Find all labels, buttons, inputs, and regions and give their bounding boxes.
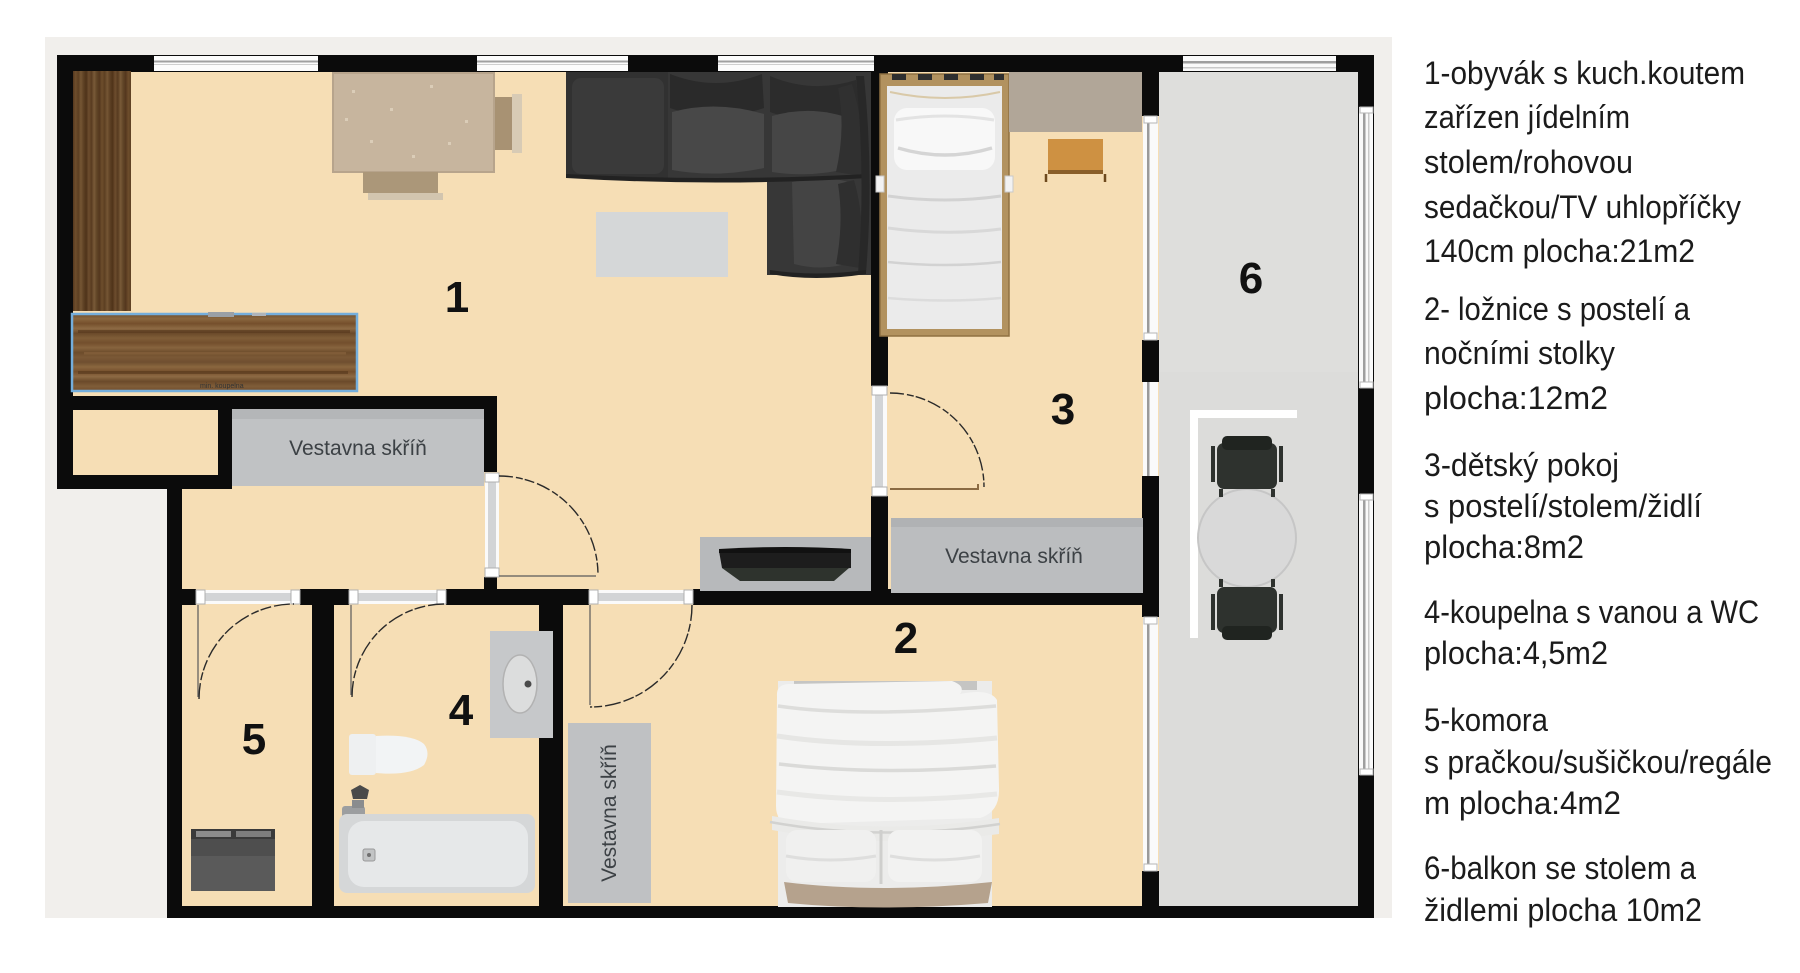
svg-text:5: 5 — [242, 715, 266, 764]
svg-text:2- ložnice s postelí a: 2- ložnice s postelí a — [1424, 291, 1690, 327]
svg-text:nočními stolky: nočními stolky — [1424, 335, 1615, 371]
svg-text:m plocha:4m2: m plocha:4m2 — [1424, 785, 1621, 821]
svg-text:1: 1 — [445, 273, 469, 322]
svg-text:6-balkon se stolem a: 6-balkon se stolem a — [1424, 850, 1696, 886]
svg-text:1-obyvák s kuch.koutem: 1-obyvák s kuch.koutem — [1424, 55, 1745, 91]
svg-text:4-koupelna s vanou a WC: 4-koupelna s vanou a WC — [1424, 594, 1759, 630]
svg-text:sedačkou/TV uhlopříčky: sedačkou/TV uhlopříčky — [1424, 189, 1741, 225]
svg-text:zařízen jídelním: zařízen jídelním — [1424, 99, 1630, 135]
svg-text:5-komora: 5-komora — [1424, 702, 1548, 738]
svg-text:140cm plocha:21m2: 140cm plocha:21m2 — [1424, 233, 1695, 269]
svg-text:plocha:4,5m2: plocha:4,5m2 — [1424, 635, 1608, 671]
svg-text:s postelí/stolem/židlí: s postelí/stolem/židlí — [1424, 488, 1702, 524]
svg-text:s pračkou/sušičkou/regále: s pračkou/sušičkou/regále — [1424, 744, 1772, 780]
svg-text:Vestavna skříň: Vestavna skříň — [945, 545, 1083, 568]
svg-text:3: 3 — [1051, 385, 1075, 434]
svg-text:2: 2 — [894, 614, 918, 663]
svg-text:židlemi plocha 10m2: židlemi plocha 10m2 — [1424, 892, 1702, 928]
svg-text:Vestavna skříň: Vestavna skříň — [598, 744, 621, 882]
svg-text:6: 6 — [1239, 254, 1263, 303]
svg-text:4: 4 — [449, 686, 474, 735]
svg-text:min. koupelna: min. koupelna — [200, 383, 244, 390]
svg-text:plocha:12m2: plocha:12m2 — [1424, 380, 1608, 416]
svg-text:stolem/rohovou: stolem/rohovou — [1424, 144, 1633, 180]
svg-text:Vestavna skříň: Vestavna skříň — [289, 437, 427, 460]
svg-text:plocha:8m2: plocha:8m2 — [1424, 529, 1584, 565]
svg-text:3-dětský pokoj: 3-dětský pokoj — [1424, 447, 1619, 483]
